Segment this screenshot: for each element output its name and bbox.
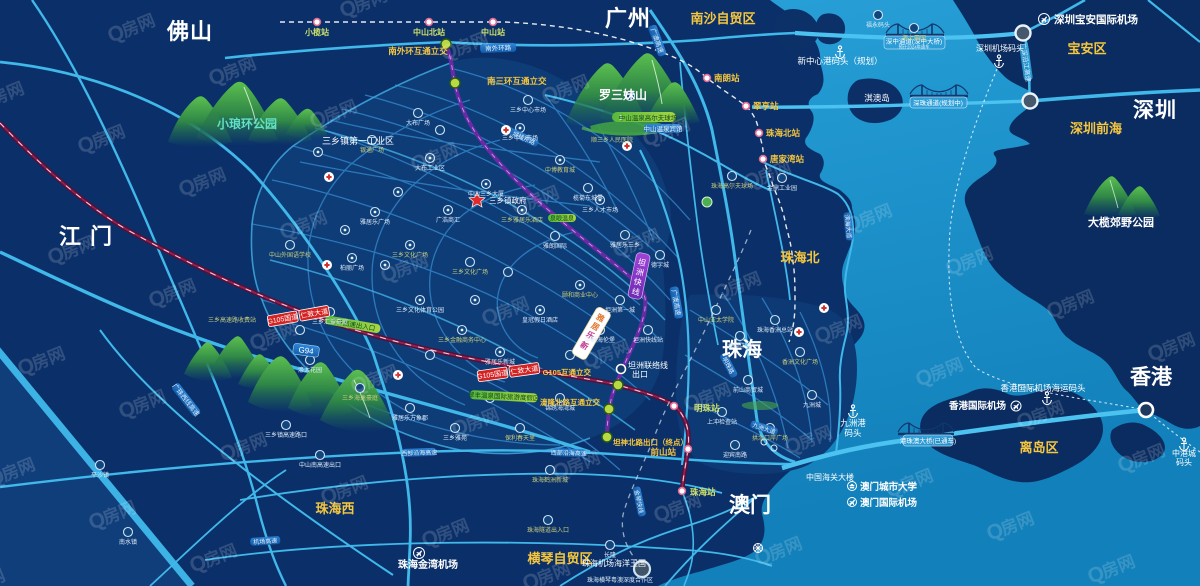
svg-text:翠亨站: 翠亨站: [753, 101, 779, 111]
svg-text:三乡文化体育公园: 三乡文化体育公园: [396, 306, 444, 314]
svg-text:三乡人才市场: 三乡人才市场: [582, 206, 618, 214]
svg-text:珠海北站: 珠海北站: [766, 128, 801, 138]
svg-text:三乡中心市场: 三乡中心市场: [510, 106, 546, 114]
svg-text:坦洲第一城: 坦洲第一城: [605, 306, 635, 314]
svg-text:深圳宝安国际机场: 深圳宝安国际机场: [1054, 13, 1138, 26]
svg-text:中山南高速出口: 中山南高速出口: [299, 461, 341, 469]
svg-text:罗三妹山: 罗三妹山: [599, 87, 647, 102]
svg-text:金鼎工业园: 金鼎工业园: [767, 184, 797, 192]
svg-text:三乡高速路收费站: 三乡高速路收费站: [208, 316, 256, 324]
svg-text:港珠澳大桥(已通车): 港珠澳大桥(已通车): [900, 436, 956, 445]
svg-text:香洲文化广场: 香洲文化广场: [782, 358, 818, 366]
svg-text:大榄郊野公园: 大榄郊野公园: [1088, 215, 1154, 229]
svg-text:珠海隧道出入口: 珠海隧道出入口: [527, 526, 569, 534]
svg-text:深珠通道(规划中): 深珠通道(规划中): [913, 98, 963, 107]
svg-text:柏丽广场: 柏丽广场: [340, 264, 364, 272]
svg-text:淇澳岛: 淇澳岛: [864, 93, 890, 103]
svg-text:三乡中心市场: 三乡中心市场: [502, 134, 538, 142]
svg-text:深圳前海: 深圳前海: [1070, 121, 1122, 136]
svg-text:香港国际机场: 香港国际机场: [948, 400, 1007, 412]
svg-text:福永码头: 福永码头: [866, 21, 890, 29]
svg-text:上冲检查站: 上冲检查站: [707, 418, 737, 426]
svg-text:广州: 广州: [605, 6, 651, 31]
svg-text:中博教育城: 中博教育城: [545, 166, 575, 174]
svg-text:中山外国语学校: 中山外国语学校: [269, 251, 311, 259]
svg-text:顺三乡人民医院: 顺三乡人民医院: [591, 136, 633, 144]
svg-text:坦神北路出口（终点）: 坦神北路出口（终点）: [613, 437, 688, 447]
svg-text:南朗站: 南朗站: [714, 73, 740, 83]
svg-text:濠太花园: 濠太花园: [298, 366, 322, 374]
svg-text:小琅环公园: 小琅环公园: [217, 116, 277, 131]
svg-text:雅居乐新城: 雅居乐新城: [485, 358, 515, 366]
svg-text:德字城: 德字城: [651, 261, 669, 269]
svg-text:码头: 码头: [844, 428, 862, 438]
svg-text:小榄站: 小榄站: [304, 27, 329, 37]
svg-text:南水镇: 南水镇: [119, 538, 137, 546]
svg-text:中国海关大楼: 中国海关大楼: [806, 472, 854, 482]
svg-text:三乡镇高速路口: 三乡镇高速路口: [265, 431, 307, 439]
svg-text:平沙镇: 平沙镇: [91, 471, 109, 479]
svg-text:澳门: 澳门: [729, 493, 771, 517]
svg-text:银通广场: 银通广场: [360, 146, 384, 154]
svg-text:香港国际机场海运码头: 香港国际机场海运码头: [1000, 383, 1086, 393]
svg-text:梅华中路: 梅华中路: [728, 342, 752, 350]
svg-text:珠海机场海洋王国: 珠海机场海洋王国: [582, 558, 646, 568]
svg-text:雅朗国际: 雅朗国际: [543, 242, 567, 250]
svg-text:中港城: 中港城: [1172, 448, 1196, 458]
svg-text:深圳: 深圳: [1133, 99, 1177, 122]
svg-text:锦绣海湾城: 锦绣海湾城: [545, 404, 575, 412]
svg-text:广浩商汇: 广浩商汇: [436, 216, 460, 224]
svg-text:前山商贸城: 前山商贸城: [733, 386, 763, 394]
svg-text:坦洲快线站: 坦洲快线站: [633, 336, 663, 344]
svg-text:皇冠假日酒店: 皇冠假日酒店: [522, 316, 558, 324]
svg-text:预计2024年通车: 预计2024年通车: [898, 43, 930, 50]
svg-text:中山亚太学院: 中山亚太学院: [698, 316, 734, 324]
svg-text:珠海横琴粤澳深度合作区: 珠海横琴粤澳深度合作区: [587, 576, 653, 584]
svg-text:新中心港码头（规划）: 新中心港码头（规划）: [797, 56, 882, 66]
svg-text:珠海香洲总站: 珠海香洲总站: [757, 326, 793, 334]
svg-text:迎宾南路: 迎宾南路: [723, 451, 747, 459]
svg-text:香港: 香港: [1130, 365, 1173, 389]
svg-text:泉眼温泉: 泉眼温泉: [550, 215, 574, 223]
svg-text:雅居乐广场: 雅居乐广场: [360, 218, 390, 226]
svg-text:三乡金融商务中心: 三乡金融商务中心: [438, 336, 486, 344]
svg-text:中山温泉高尔夫球场: 中山温泉高尔夫球场: [619, 113, 678, 122]
svg-text:大布广场: 大布广场: [406, 119, 430, 127]
svg-text:珠海北: 珠海北: [780, 250, 819, 265]
svg-text:G105互通立交: G105互通立交: [543, 367, 592, 377]
svg-text:三乡汇翠豪庭: 三乡汇翠豪庭: [312, 318, 348, 326]
svg-text:南沙自贸区: 南沙自贸区: [690, 11, 755, 26]
svg-text:宝安区: 宝安区: [1067, 41, 1106, 56]
svg-text:保利春天里: 保利春天里: [505, 434, 535, 442]
svg-text:码头: 码头: [1176, 457, 1192, 467]
svg-text:中山三乡大厦: 中山三乡大厦: [468, 190, 504, 198]
svg-text:中山北站: 中山北站: [413, 27, 445, 37]
svg-text:前山站: 前山站: [650, 447, 676, 457]
svg-text:佛山: 佛山: [166, 19, 213, 44]
svg-text:长隆: 长隆: [604, 551, 616, 559]
svg-text:深圳机场码头: 深圳机场码头: [976, 43, 1024, 53]
svg-text:南三环互通立交: 南三环互通立交: [487, 76, 547, 86]
svg-text:颐和商业中心: 颐和商业中心: [562, 291, 598, 299]
svg-text:九洲城: 九洲城: [803, 401, 821, 409]
svg-text:九洲港: 九洲港: [840, 418, 866, 428]
svg-text:出口: 出口: [632, 369, 648, 379]
svg-text:三乡文化广场: 三乡文化广场: [452, 268, 488, 276]
svg-text:珠海金湾机场: 珠海金湾机场: [398, 558, 458, 571]
svg-text:离岛区: 离岛区: [1019, 440, 1058, 455]
svg-text:榄菊东城界: 榄菊东城界: [573, 194, 603, 202]
svg-text:三乡镇第一工业区: 三乡镇第一工业区: [322, 135, 394, 146]
svg-text:坦洲联络线: 坦洲联络线: [628, 360, 668, 370]
svg-text:雅居乐万象郡: 雅居乐万象郡: [392, 414, 428, 422]
svg-text:海上田园: 海上田园: [902, 34, 926, 42]
